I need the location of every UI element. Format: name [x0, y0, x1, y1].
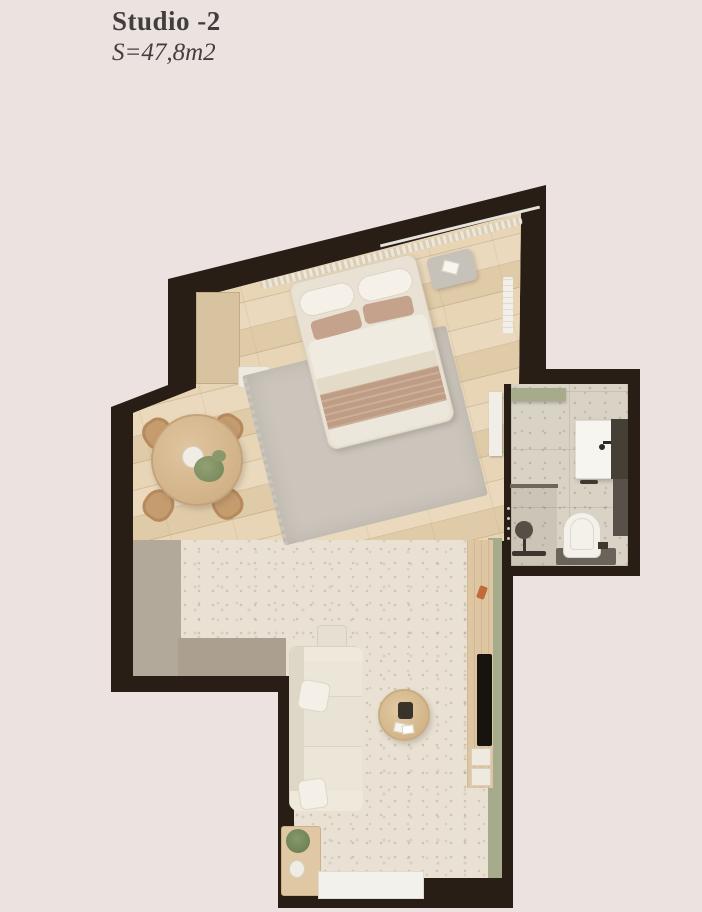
bathroom-tall-unit: [613, 479, 628, 536]
tv: [477, 654, 492, 746]
gray-floor-zone-bottom: [178, 638, 286, 676]
toilet: [563, 512, 601, 558]
gray-floor-zone-left: [133, 540, 181, 676]
green-shelf: [511, 388, 566, 401]
tray: [398, 702, 413, 719]
sofa: [289, 624, 362, 812]
coffee-table: [378, 689, 430, 741]
entry-mat: [318, 871, 424, 899]
book: [441, 260, 459, 276]
media-storage-box: [471, 768, 491, 786]
sofa-pillow: [297, 777, 329, 811]
table-plant: [194, 456, 224, 482]
washbasin: [575, 420, 613, 479]
wardrobe: [196, 292, 240, 384]
shower-partition: [510, 484, 558, 488]
magazine: [401, 724, 414, 735]
vase: [289, 860, 305, 878]
bathroom-door: [489, 392, 502, 456]
sofa-back-cushion: [317, 625, 347, 648]
towel-bar: [580, 480, 598, 484]
shower-arm: [523, 539, 526, 551]
flush-button: [598, 542, 608, 549]
floor-plan: [0, 0, 702, 912]
sofa-body: [289, 646, 362, 810]
toilet-seat: [570, 518, 594, 550]
shower-fitting: [512, 551, 546, 556]
radiator: [503, 277, 513, 334]
faucet: [599, 444, 605, 450]
plant: [286, 829, 310, 853]
shower-controls: [505, 505, 513, 549]
shower-head: [515, 521, 533, 539]
bathroom-cabinet: [611, 419, 628, 479]
media-storage-box: [471, 748, 491, 766]
sofa-pillow: [297, 679, 332, 714]
floor-plan-page: Studio -2 S=47,8m2: [0, 0, 702, 912]
